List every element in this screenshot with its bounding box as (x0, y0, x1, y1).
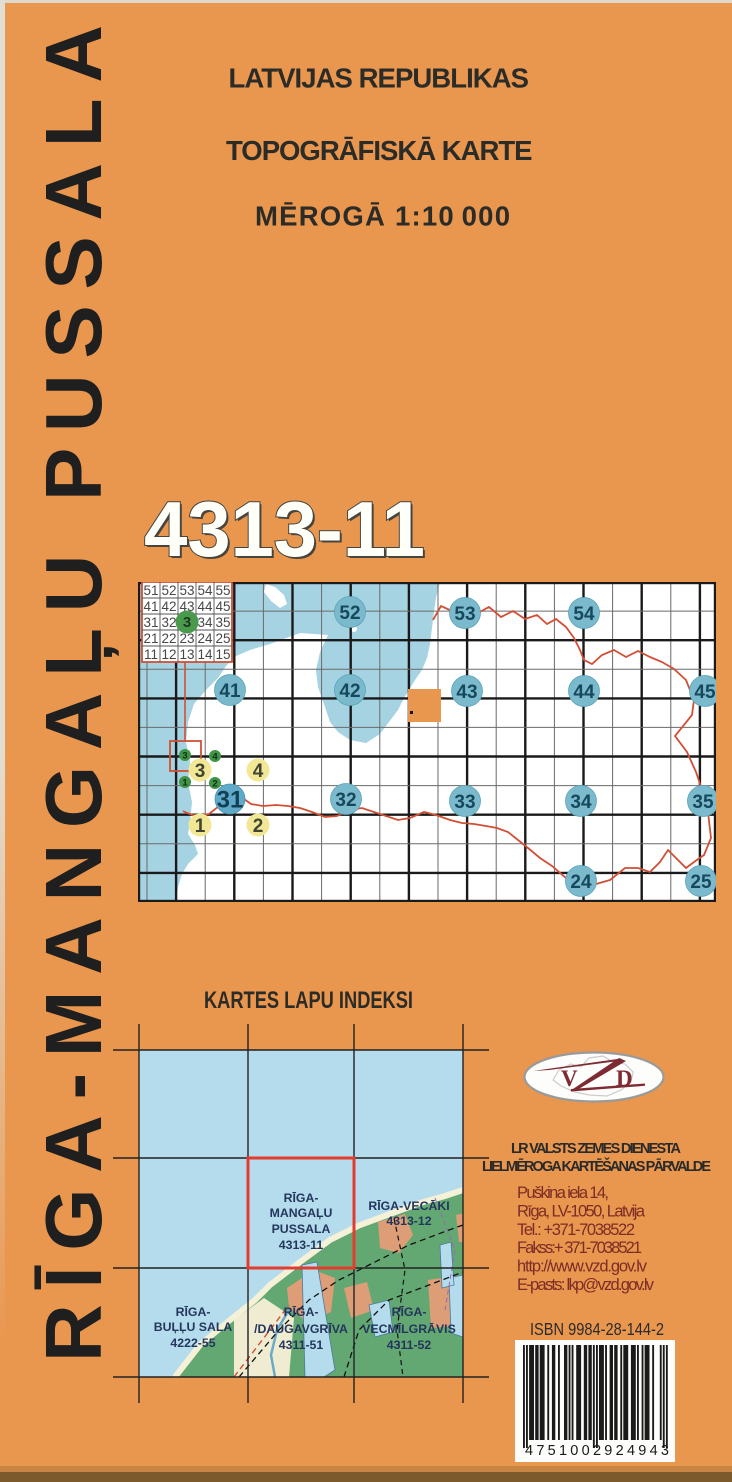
svg-text:RĪGA-: RĪGA- (284, 1191, 319, 1205)
svg-text:25: 25 (690, 872, 712, 893)
svg-text:TOPOGRĀFISKĀ KARTE: TOPOGRĀFISKĀ KARTE (226, 135, 535, 166)
svg-text:23: 23 (179, 631, 194, 646)
svg-text:Rīga, LV-1050, Latvija: Rīga, LV-1050, Latvija (517, 1202, 646, 1220)
svg-text:PUSSALA: PUSSALA (272, 1222, 331, 1236)
svg-text:32: 32 (335, 790, 356, 811)
svg-text:/DAUGAVGRĪVA: /DAUGAVGRĪVA (254, 1322, 348, 1336)
svg-text:45: 45 (215, 599, 230, 614)
svg-text:3: 3 (195, 761, 206, 782)
svg-text:43: 43 (179, 599, 194, 614)
svg-text:31: 31 (143, 615, 158, 630)
svg-text:52: 52 (161, 583, 176, 598)
svg-text:42: 42 (339, 681, 360, 702)
svg-text:RĪGA-: RĪGA- (392, 1305, 427, 1319)
svg-text:4313-12: 4313-12 (386, 1214, 431, 1228)
svg-text:32: 32 (161, 615, 176, 630)
svg-text:4: 4 (212, 752, 218, 763)
svg-text:4: 4 (253, 761, 264, 782)
svg-text:4313-11: 4313-11 (144, 485, 436, 573)
svg-text:2: 2 (212, 779, 217, 790)
svg-text:LATVIJAS REPUBLIKAS: LATVIJAS REPUBLIKAS (229, 63, 532, 94)
svg-text:45: 45 (694, 682, 716, 703)
svg-text:33: 33 (454, 792, 475, 813)
svg-text:4311-52: 4311-52 (387, 1338, 432, 1352)
svg-text:Tel.: +371-7038522: Tel.: +371-7038522 (517, 1221, 635, 1239)
svg-text:D: D (616, 1066, 633, 1091)
svg-text:22: 22 (161, 631, 176, 646)
svg-text:V: V (561, 1066, 578, 1091)
svg-text:41: 41 (219, 681, 241, 702)
svg-text:53: 53 (454, 604, 475, 625)
svg-text:LIELMĒROGA KARTĒŠANAS PĀRVALDE: LIELMĒROGA KARTĒŠANAS PĀRVALDE (482, 1157, 711, 1175)
svg-text:21: 21 (143, 631, 158, 646)
svg-text:1: 1 (182, 778, 188, 789)
svg-text:ISBN 9984-28-144-2: ISBN 9984-28-144-2 (530, 1319, 664, 1339)
svg-text:VECMĪLGRĀVIS: VECMĪLGRĀVIS (362, 1322, 456, 1336)
svg-text:42: 42 (161, 599, 176, 614)
svg-text:24: 24 (570, 872, 592, 893)
svg-text:MĒROGĀ 1:10 000: MĒROGĀ 1:10 000 (255, 201, 510, 232)
svg-text:15: 15 (215, 647, 230, 662)
svg-text:54: 54 (573, 604, 595, 625)
svg-text:LR VALSTS ZEMES DIENESTA: LR VALSTS ZEMES DIENESTA (511, 1141, 682, 1157)
svg-text:44: 44 (573, 682, 595, 703)
svg-text:Puškina iela 14,: Puškina iela 14, (517, 1184, 609, 1202)
svg-text:RĪGA-VECĀKI: RĪGA-VECĀKI (368, 1199, 449, 1213)
svg-text:41: 41 (143, 599, 158, 614)
svg-text:35: 35 (692, 792, 714, 813)
svg-text:4222-55: 4222-55 (170, 1336, 215, 1350)
svg-text:53: 53 (179, 583, 194, 598)
svg-text:31: 31 (217, 787, 244, 814)
svg-text:4313-11: 4313-11 (279, 1238, 324, 1252)
svg-text:43: 43 (456, 682, 477, 703)
svg-text:http://www.vzd.gov.lv: http://www.vzd.gov.lv (517, 1258, 648, 1276)
svg-text:25: 25 (215, 631, 230, 646)
svg-text:RĪGA-: RĪGA- (176, 1305, 211, 1319)
svg-text:35: 35 (215, 615, 230, 630)
svg-text:RĪGA-: RĪGA- (284, 1305, 319, 1319)
svg-text:2: 2 (253, 816, 264, 837)
svg-text:54: 54 (197, 583, 213, 598)
svg-text:52: 52 (339, 603, 360, 624)
svg-text:4751002924943: 4751002924943 (525, 1443, 669, 1459)
svg-text:14: 14 (197, 647, 213, 662)
svg-text:55: 55 (215, 583, 230, 598)
svg-text:11: 11 (144, 647, 158, 662)
svg-text:3: 3 (182, 751, 187, 762)
svg-text:12: 12 (161, 647, 176, 662)
svg-text:Fakss:+ 371-7038521: Fakss:+ 371-7038521 (517, 1239, 642, 1257)
svg-text:MANGAĻU: MANGAĻU (270, 1206, 333, 1220)
svg-text:13: 13 (179, 647, 194, 662)
svg-text:34: 34 (570, 792, 592, 813)
svg-text:34: 34 (197, 615, 213, 630)
svg-text:BUĻĻU SALA: BUĻĻU SALA (154, 1320, 233, 1334)
svg-text:44: 44 (197, 599, 213, 614)
svg-text:KARTES LAPU INDEKSI: KARTES LAPU INDEKSI (204, 987, 413, 1014)
svg-text:1: 1 (195, 816, 206, 837)
svg-text:E-pasts: lkp@vzd.gov.lv: E-pasts: lkp@vzd.gov.lv (517, 1276, 655, 1294)
svg-text:3: 3 (183, 614, 191, 631)
svg-text:4311-51: 4311-51 (279, 1338, 324, 1352)
svg-text:51: 51 (143, 583, 158, 598)
svg-text:24: 24 (197, 631, 213, 646)
